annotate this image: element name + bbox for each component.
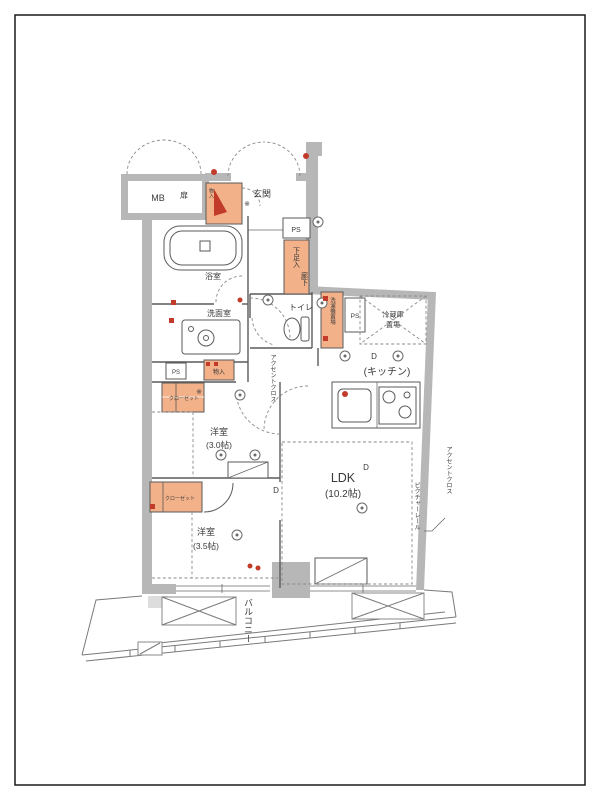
label-entrance: 玄関: [253, 188, 271, 199]
label-bedroom-a: 洋室: [210, 426, 228, 437]
bottom-wall-center-block: [272, 562, 310, 598]
point-icon: [238, 298, 243, 303]
label-note-mark: ※: [196, 389, 202, 396]
washer-tap-icon: [323, 296, 328, 301]
vanity-counter: [182, 320, 240, 354]
label-hallway: 廊下: [301, 271, 309, 287]
washer-tap-icon: [323, 336, 328, 341]
label-fridge: 冷蔵庫: [383, 310, 404, 319]
point-icon: [256, 566, 261, 571]
floor-plan-page: MB 扉 玄関 PS 下足入 トイレ 浴室 洗面室 廊下 物入 物入 PS 洗濯…: [0, 0, 600, 800]
valve-icon: [171, 300, 176, 305]
label-bedroom-b-size: (3.5帖): [193, 541, 219, 551]
label-shoe-cabinet: 下足入: [293, 247, 301, 268]
image-border-frame: [15, 15, 585, 785]
label-door-mark: D: [371, 352, 377, 361]
right-wall: [416, 292, 436, 590]
floor-plan-drawing: MB 扉 玄関 PS 下足入 トイレ 浴室 洗面室 廊下 物入 物入 PS 洗濯…: [0, 0, 600, 800]
label-bath: 浴室: [205, 271, 221, 281]
label-ps: PS: [172, 370, 180, 376]
entrance-door-arc: [228, 142, 264, 176]
label-fridge: 置場: [386, 320, 400, 329]
valve-icon: [214, 362, 218, 366]
label-washroom: 洗面室: [207, 308, 231, 318]
planter-box: [162, 597, 236, 625]
valve-icon: [150, 504, 155, 509]
label-door-mark: D: [273, 486, 279, 495]
label-ldk-size: (10.2帖): [325, 487, 361, 500]
label-kitchen: (キッチン): [364, 366, 411, 378]
label-closet: クローゼット: [165, 495, 195, 502]
label-picture-rail: ピクチャーレール: [413, 482, 420, 530]
label-washer: 洗濯機置場: [329, 296, 336, 326]
entrance-door-arc: [264, 142, 300, 176]
label-bedroom-b: 洋室: [197, 526, 215, 537]
leader-lines: [424, 518, 445, 531]
planter-box: [352, 593, 424, 619]
valve-icon: [206, 362, 210, 366]
toilet-door-arc: [252, 318, 274, 345]
point-icon: [248, 564, 253, 569]
mb-door-arc: [127, 140, 164, 174]
label-mb: MB: [151, 193, 165, 203]
label-accent-cloth: アクセントクロス: [269, 354, 276, 402]
faucet-icon: [342, 391, 348, 397]
label-balcony: バルコニー: [243, 598, 253, 643]
balcony-area: [82, 590, 456, 661]
label-toilet: トイレ: [289, 303, 313, 312]
valve-icon: [169, 318, 174, 323]
label-ps: PS: [351, 313, 360, 320]
label-note-mark: ※: [244, 201, 250, 208]
toilet-tank: [301, 317, 309, 341]
mb-box-inner: [128, 181, 202, 213]
label-door-mark: D: [363, 463, 369, 472]
label-ps: PS: [291, 227, 301, 234]
entrance-wall-left: [205, 173, 231, 181]
bottom-wall-left: [142, 584, 176, 594]
label-storage: 物入: [213, 368, 225, 376]
label-bedroom-a-size: (3.0帖): [206, 440, 232, 450]
label-accent-cloth: アクセントクロス: [445, 446, 452, 494]
left-wall: [142, 216, 152, 594]
point-icon: [211, 169, 217, 175]
label-closet: クローゼット: [169, 395, 199, 402]
closet-door-arc: [204, 483, 233, 512]
label-ldk: LDK: [331, 471, 356, 485]
mb-door-arc: [164, 140, 201, 174]
label-entrance-storage: 物入: [208, 187, 214, 198]
point-icon: [303, 153, 309, 159]
label-mb-tag: 扉: [180, 190, 188, 200]
